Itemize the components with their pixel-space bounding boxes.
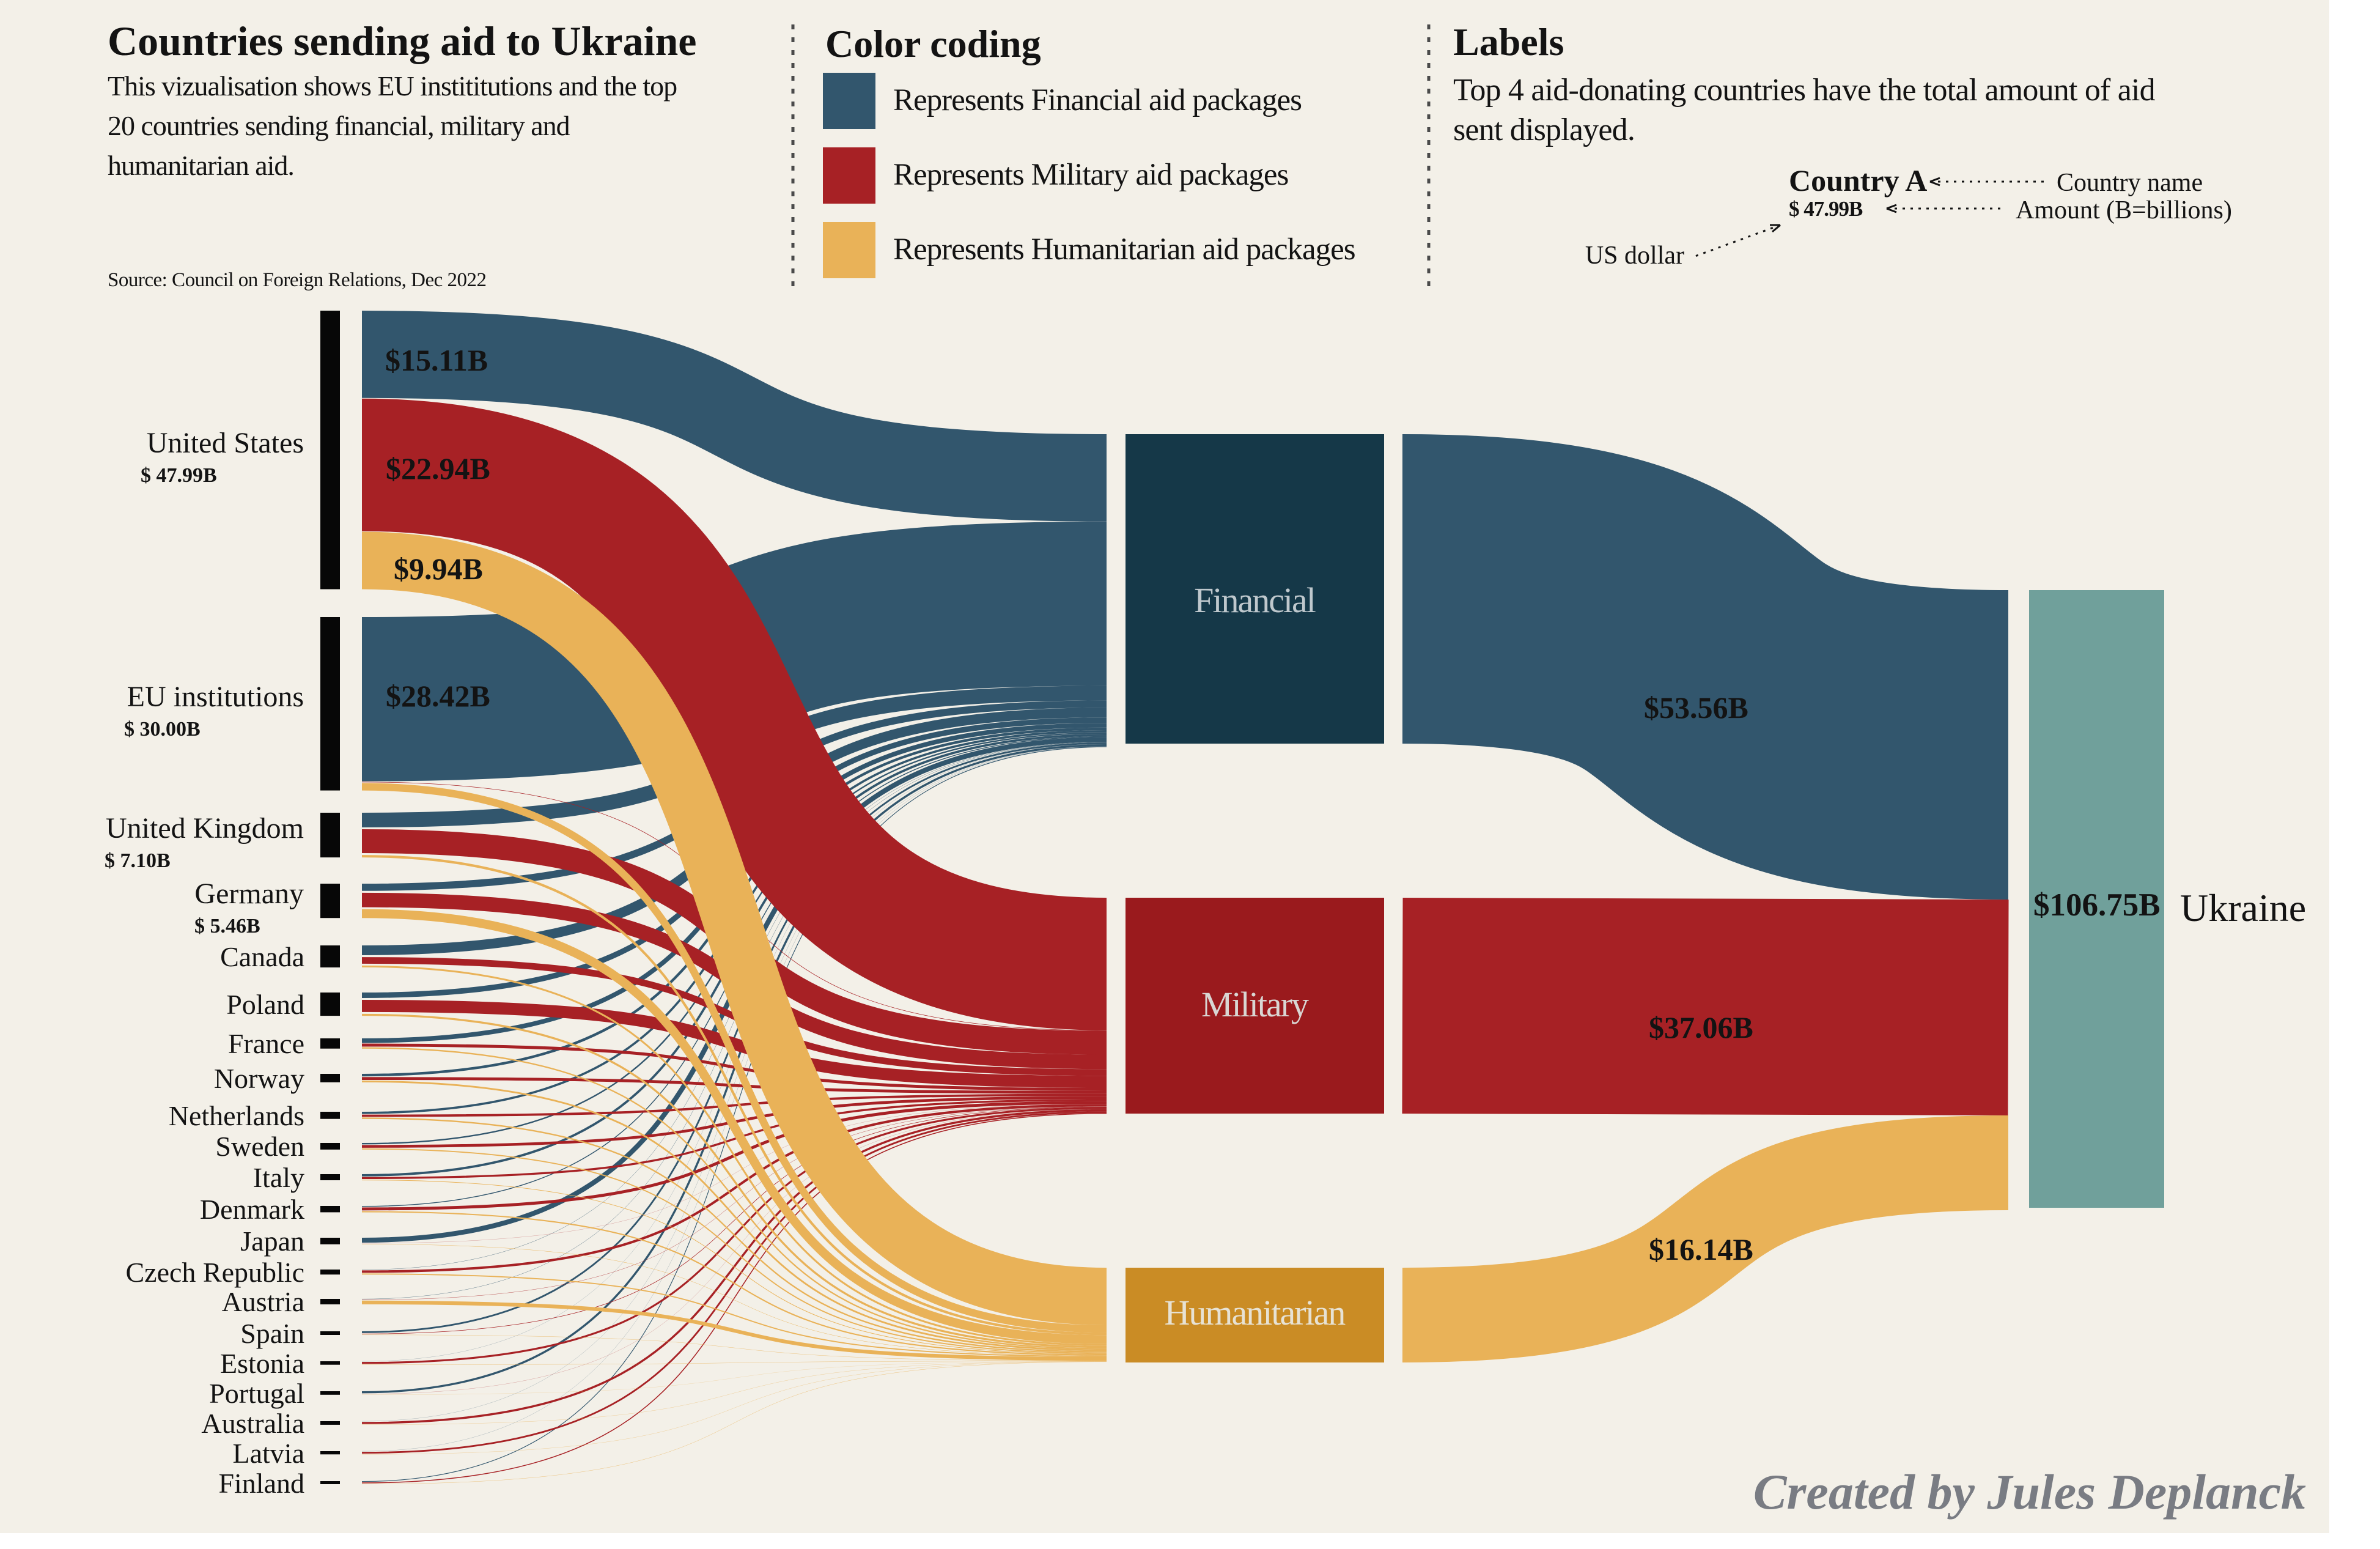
svg-text:Created by Jules Deplanck: Created by Jules Deplanck	[1753, 1464, 2306, 1520]
svg-text:US dollar: US dollar	[1585, 242, 1684, 270]
svg-text:Labels: Labels	[1453, 20, 1564, 64]
svg-text:United States: United States	[147, 427, 304, 459]
svg-text:Netherlands: Netherlands	[169, 1100, 304, 1131]
svg-text:United Kingdom: United Kingdom	[106, 812, 304, 845]
svg-text:Austria: Austria	[222, 1286, 304, 1317]
svg-text:$15.11B: $15.11B	[385, 343, 488, 377]
svg-text:EU institutions: EU institutions	[127, 681, 304, 713]
svg-text:Countries sending aid to Ukrai: Countries sending aid to Ukraine	[108, 18, 696, 64]
svg-text:Represents Humanitarian aid pa: Represents Humanitarian aid packages	[893, 232, 1355, 267]
svg-text:This vizualisation shows EU in: This vizualisation shows EU instititutio…	[108, 70, 677, 102]
svg-text:Top 4 aid-donating countries h: Top 4 aid-donating countries have the to…	[1453, 73, 2156, 108]
svg-text:$16.14B: $16.14B	[1649, 1232, 1753, 1266]
svg-text:$37.06B: $37.06B	[1649, 1010, 1753, 1044]
svg-text:$106.75B: $106.75B	[2033, 887, 2161, 923]
svg-text:$ 47.99B: $ 47.99B	[1789, 197, 1863, 221]
svg-text:Germany: Germany	[194, 878, 304, 910]
svg-text:$53.56B: $53.56B	[1644, 690, 1748, 725]
svg-text:Denmark: Denmark	[200, 1194, 304, 1225]
svg-text:$ 5.46B: $ 5.46B	[194, 915, 260, 937]
svg-text:Country name: Country name	[2057, 169, 2203, 197]
svg-text:Source: Council on Foreign Rel: Source: Council on Foreign Relations, De…	[108, 269, 487, 291]
svg-text:Financial: Financial	[1194, 580, 1316, 620]
svg-text:20 countries sending financial: 20 countries sending financial, military…	[108, 110, 570, 141]
svg-text:$22.94B: $22.94B	[386, 451, 490, 486]
svg-text:Poland: Poland	[226, 989, 304, 1020]
svg-text:Czech Republic: Czech Republic	[125, 1257, 304, 1288]
svg-text:Latvia: Latvia	[233, 1438, 305, 1469]
svg-text:sent displayed.: sent displayed.	[1453, 113, 1635, 147]
svg-text:Spain: Spain	[240, 1318, 304, 1349]
svg-text:Amount (B=billions): Amount (B=billions)	[2016, 196, 2232, 224]
svg-text:Estonia: Estonia	[220, 1348, 304, 1379]
svg-text:Humanitarian: Humanitarian	[1165, 1293, 1346, 1333]
svg-text:Represents Military aid packag: Represents Military aid packages	[893, 158, 1288, 192]
svg-text:Represents Financial aid packa: Represents Financial aid packages	[893, 83, 1302, 117]
svg-text:$ 7.10B: $ 7.10B	[105, 849, 171, 872]
svg-text:Ukraine: Ukraine	[2180, 886, 2306, 930]
svg-text:Canada: Canada	[220, 941, 304, 972]
svg-text:France: France	[228, 1028, 304, 1059]
svg-text:Country A: Country A	[1789, 163, 1927, 198]
svg-text:Sweden: Sweden	[215, 1131, 304, 1162]
svg-text:Norway: Norway	[214, 1063, 304, 1094]
svg-text:$ 47.99B: $ 47.99B	[141, 464, 217, 487]
svg-text:$9.94B: $9.94B	[394, 552, 483, 586]
svg-text:Italy: Italy	[253, 1162, 304, 1193]
svg-text:humanitarian aid.: humanitarian aid.	[108, 150, 294, 181]
svg-text:$ 30.00B: $ 30.00B	[124, 718, 201, 741]
svg-text:Finland: Finland	[218, 1468, 304, 1499]
svg-text:Color coding: Color coding	[825, 22, 1041, 65]
svg-text:$28.42B: $28.42B	[386, 679, 490, 713]
svg-text:Portugal: Portugal	[209, 1378, 304, 1409]
svg-text:Japan: Japan	[240, 1226, 304, 1257]
svg-text:Military: Military	[1201, 985, 1309, 1024]
svg-text:Australia: Australia	[201, 1408, 304, 1439]
